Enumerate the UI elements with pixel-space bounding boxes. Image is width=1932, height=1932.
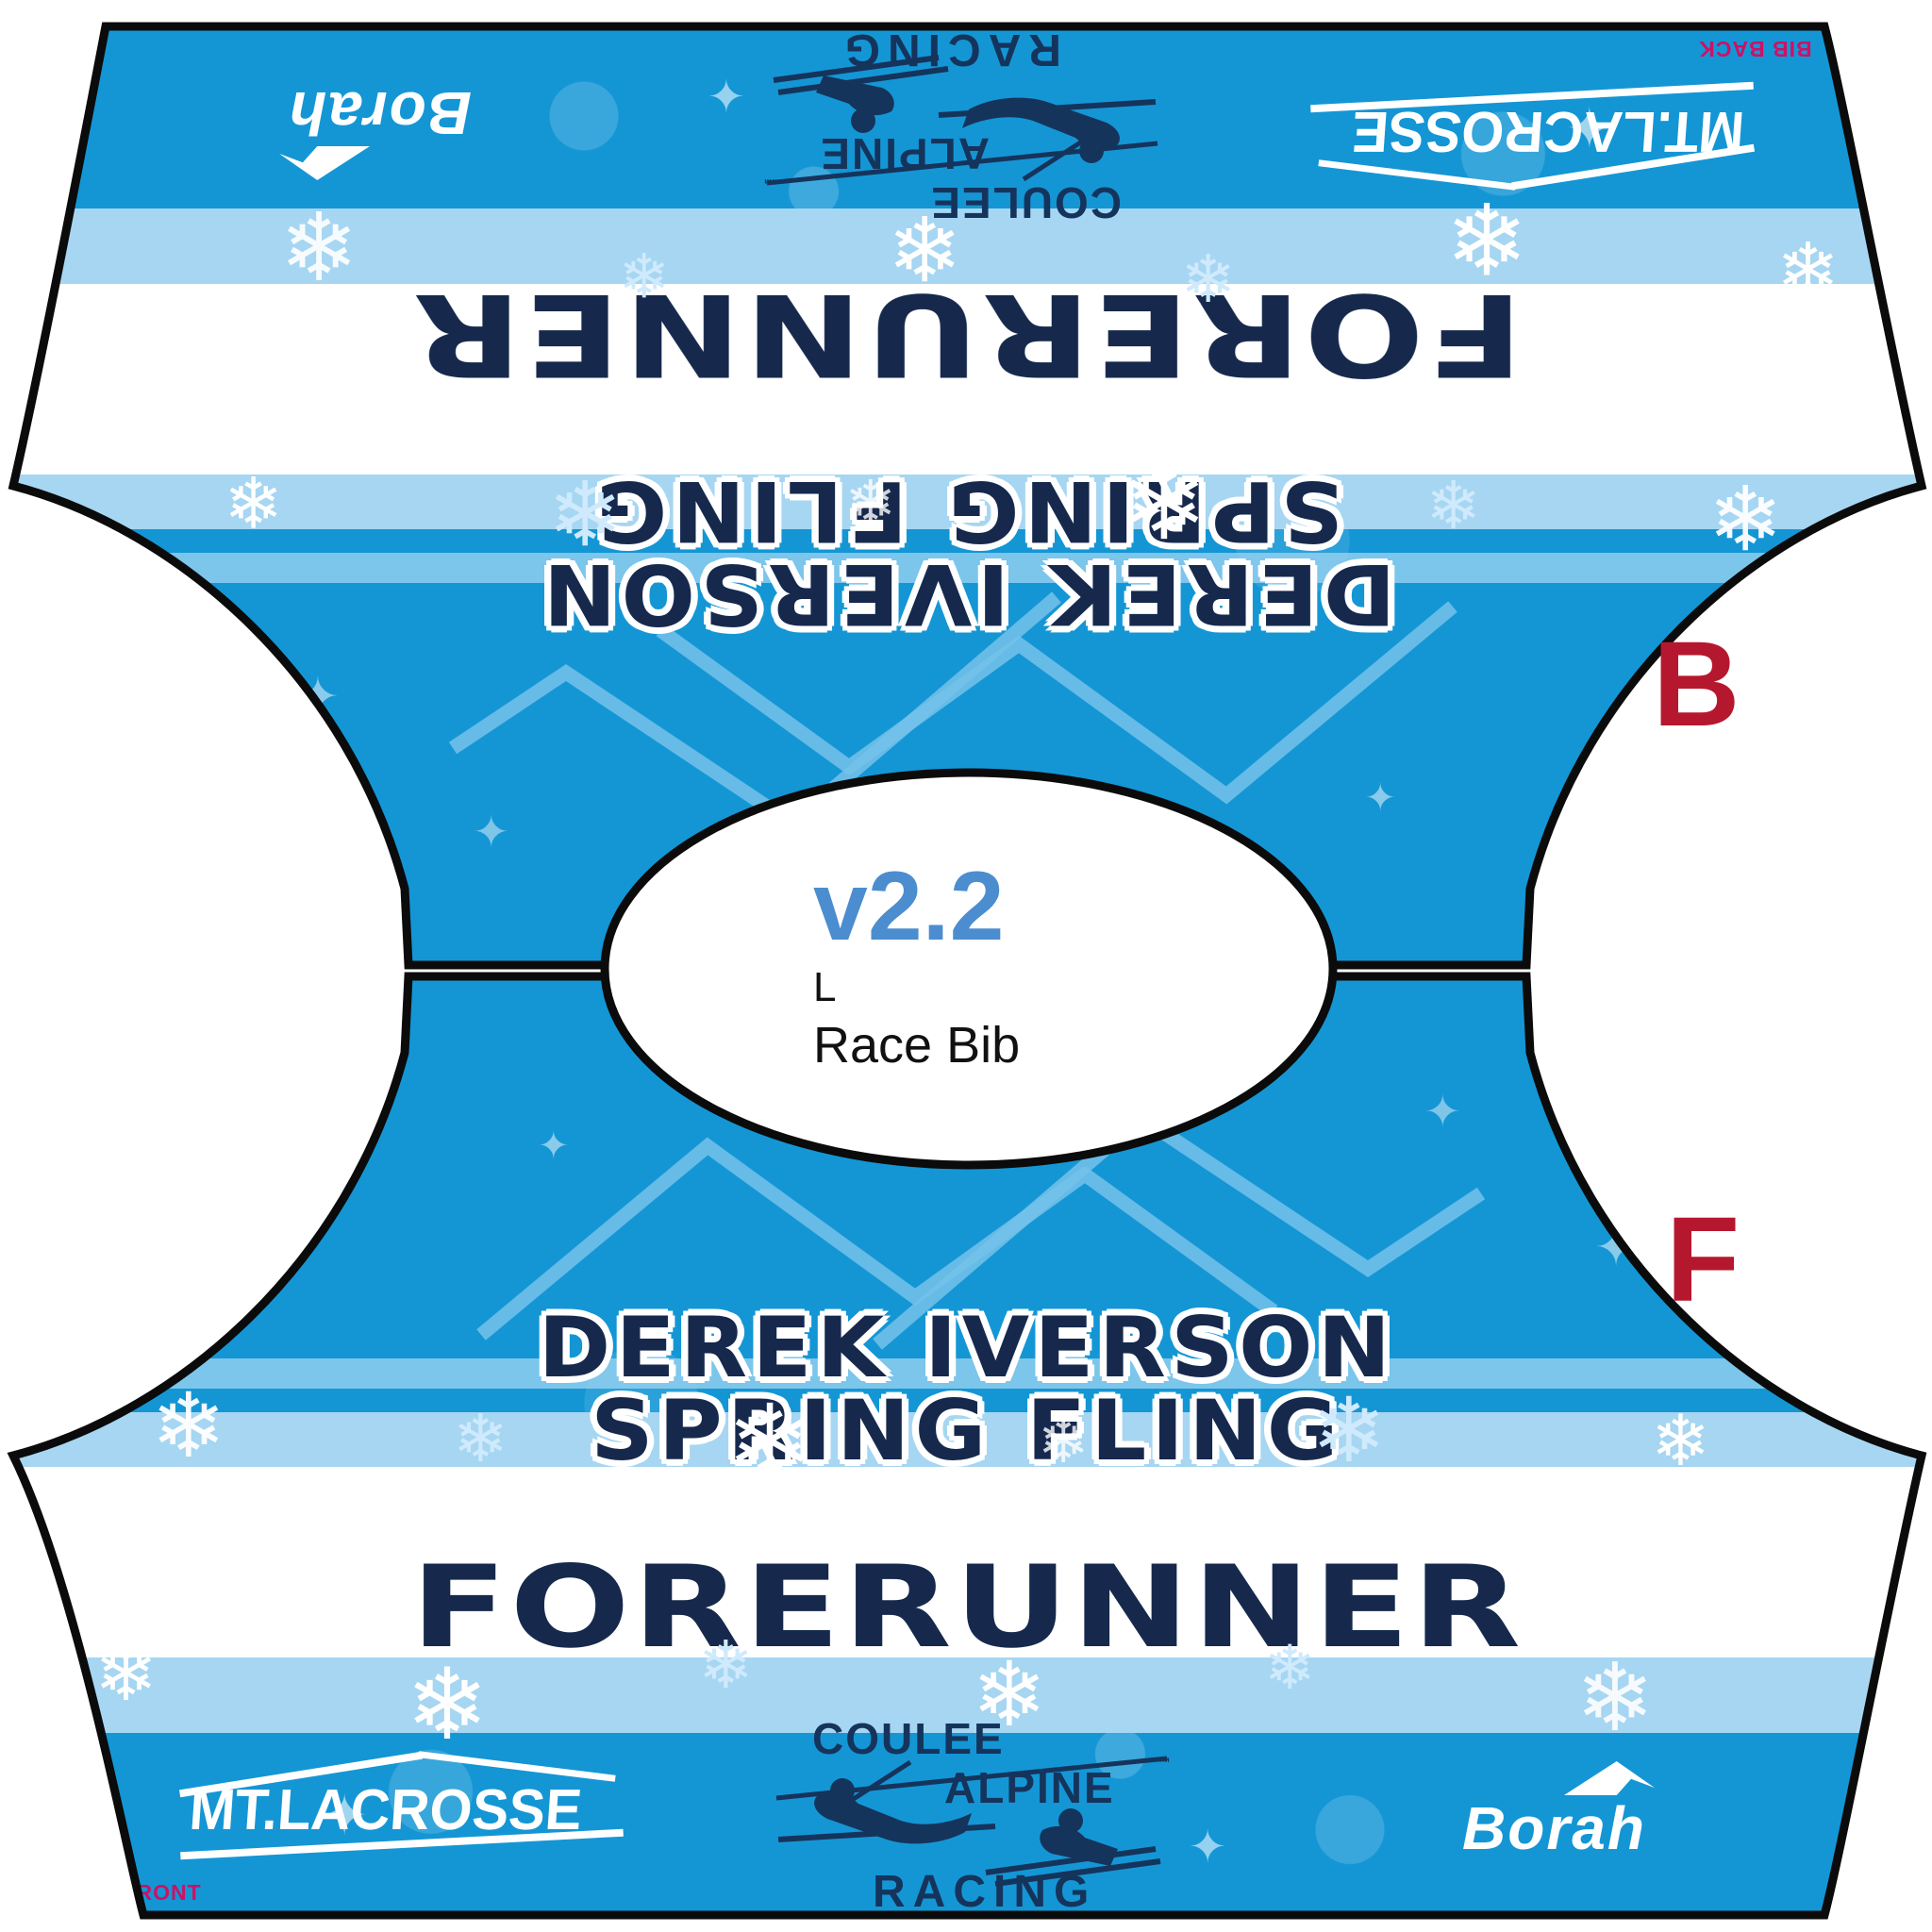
event-line2: SPRING FLING [0,1382,1932,1479]
sparkle-icon: ✦ [1812,786,1868,852]
snowflake-icon: ❄ [279,196,358,291]
coulee-alpine-racing-logo: COULEE ALPINE ™ RACING [759,1707,1184,1924]
mt-lacrosse-logo-text: MT.LACROSSE [188,1776,585,1842]
sparkle-icon: ✦ [473,808,509,852]
alpine-logo-text: ALPINE [944,1762,1115,1813]
sparkle-icon: ✦ [538,1127,570,1165]
trademark-symbol: ™ [763,172,776,187]
proof-corner-label-front: L FRONT [94,1880,202,1906]
borah-logo: Borah [170,69,481,173]
coulee-logo-text: COULEE [929,177,1122,228]
borah-logo-text: Borah [1462,1793,1646,1863]
sparkle-icon: ✦ [296,668,340,720]
coulee-logo-text: COULEE [812,1713,1005,1764]
snowflake-icon: ❄ [1180,243,1236,309]
sparkle-icon: ✦ [1802,1061,1869,1141]
sparkle-icon: ✦ [708,71,745,116]
sparkle-icon: ✦ [66,1090,122,1156]
snowflake-icon: ❄ [1038,1410,1089,1472]
snowflake-icon: ❄ [547,465,623,555]
sparkle-icon: ✦ [236,1259,274,1305]
proof-corner-label-back: L BIB BACK [1698,36,1840,61]
front-marker-letter: F [1666,1200,1740,1321]
snowflake-icon: ❄ [1264,1637,1315,1698]
snowflake-icon: ❄ [1311,1387,1387,1476]
snowflake-icon: ❄ [1121,446,1207,550]
bib-back-design: ✦ ✦ ✦ ✦ ✦ ✦ DEREK IVERSON SPRING FLING F… [9,22,1924,965]
borah-logo: Borah [1453,1769,1764,1873]
event-line1: DEREK IVERSON [0,545,1932,642]
version-label: v2.2 [813,860,1020,954]
sparkle-icon: ✦ [65,800,132,880]
snowflake-icon: ❄ [224,465,283,536]
sparkle-icon: ✦ [1424,1090,1461,1133]
snowflake-icon: ❄ [1425,470,1481,536]
mt-lacrosse-logo: MT.LACROSSE [184,1757,608,1852]
mt-lacrosse-logo: MT.LACROSSE [1325,90,1750,184]
back-marker-letter: B [1653,625,1740,745]
snowflake-icon: ❄ [151,1382,226,1472]
bib-front-design: ✦ ✦ ✦ ✦ ✦ ✦ DEREK IVERSON SPRING FLING F… [9,976,1924,1924]
alpine-logo-text: ALPINE [819,128,990,179]
proof-info-block: v2.2 L Race Bib [813,860,1020,1071]
mt-lacrosse-logo-text: MT.LACROSSE [1350,98,1747,164]
snowflake-icon: ❄ [1575,1651,1655,1745]
race-bib-proof-sheet: ✦ ✦ ✦ ✦ ✦ ✦ DEREK IVERSON SPRING FLING F… [0,0,1932,1932]
racing-logo-text: RACING [838,24,1061,75]
snowflake-icon: ❄ [698,1632,754,1698]
racing-logo-text: RACING [873,1866,1096,1918]
size-label: L [813,967,1020,1008]
snowflake-icon: ❄ [1776,229,1840,305]
coulee-alpine-racing-logo: COULEE ALPINE ™ RACING [750,17,1174,234]
snowflake-icon: ❄ [1707,470,1783,559]
snowflake-icon: ❄ [94,1637,158,1712]
snowflake-icon: ❄ [726,1391,813,1495]
snowflake-icon: ❄ [619,243,670,305]
product-label: Race Bib [813,1020,1020,1071]
borah-logo-text: Borah [288,78,472,148]
trademark-symbol: ™ [1158,1755,1171,1770]
snowflake-icon: ❄ [406,1656,489,1755]
snowflake-icon: ❄ [453,1406,508,1472]
sparkle-icon: ✦ [1594,1222,1638,1274]
snowflake-icon: ❄ [1651,1406,1710,1476]
snowflake-icon: ❄ [845,470,896,531]
snowflake-icon: ❄ [1445,187,1528,286]
sparkle-icon: ✦ [1189,1825,1226,1871]
event-line2: SPRING FLING [0,462,1932,559]
sparkle-icon: ✦ [1364,776,1396,814]
